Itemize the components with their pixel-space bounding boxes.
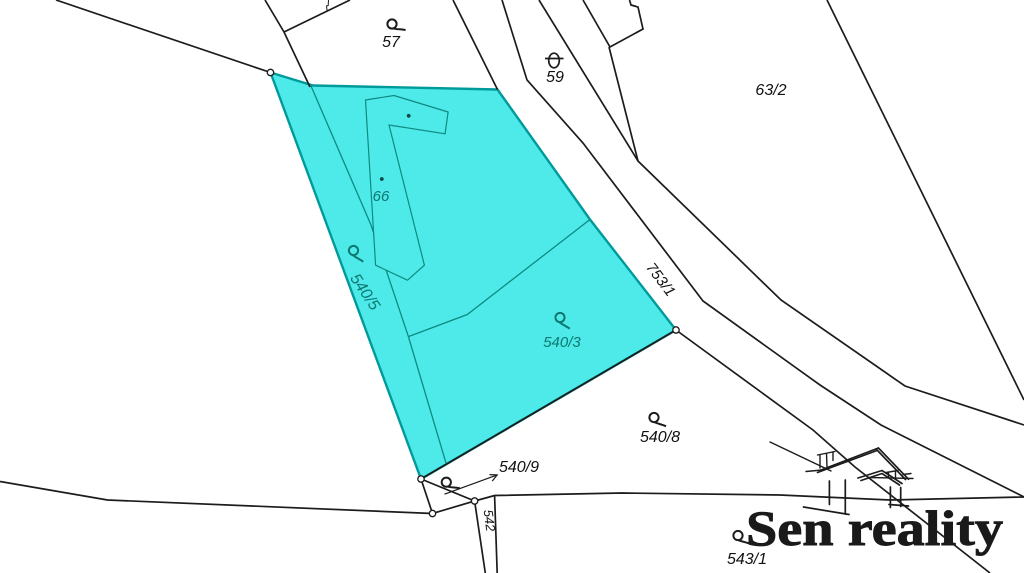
svg-text:542: 542 — [481, 509, 499, 533]
svg-text:540/3: 540/3 — [543, 334, 581, 351]
svg-text:540/9: 540/9 — [499, 459, 539, 476]
svg-text:63/2: 63/2 — [755, 82, 786, 99]
svg-text:66: 66 — [373, 188, 390, 205]
svg-text:59: 59 — [546, 69, 564, 86]
svg-text:Sen reality: Sen reality — [746, 500, 1003, 556]
svg-text:540/8: 540/8 — [640, 429, 680, 446]
svg-text:57: 57 — [382, 34, 401, 51]
